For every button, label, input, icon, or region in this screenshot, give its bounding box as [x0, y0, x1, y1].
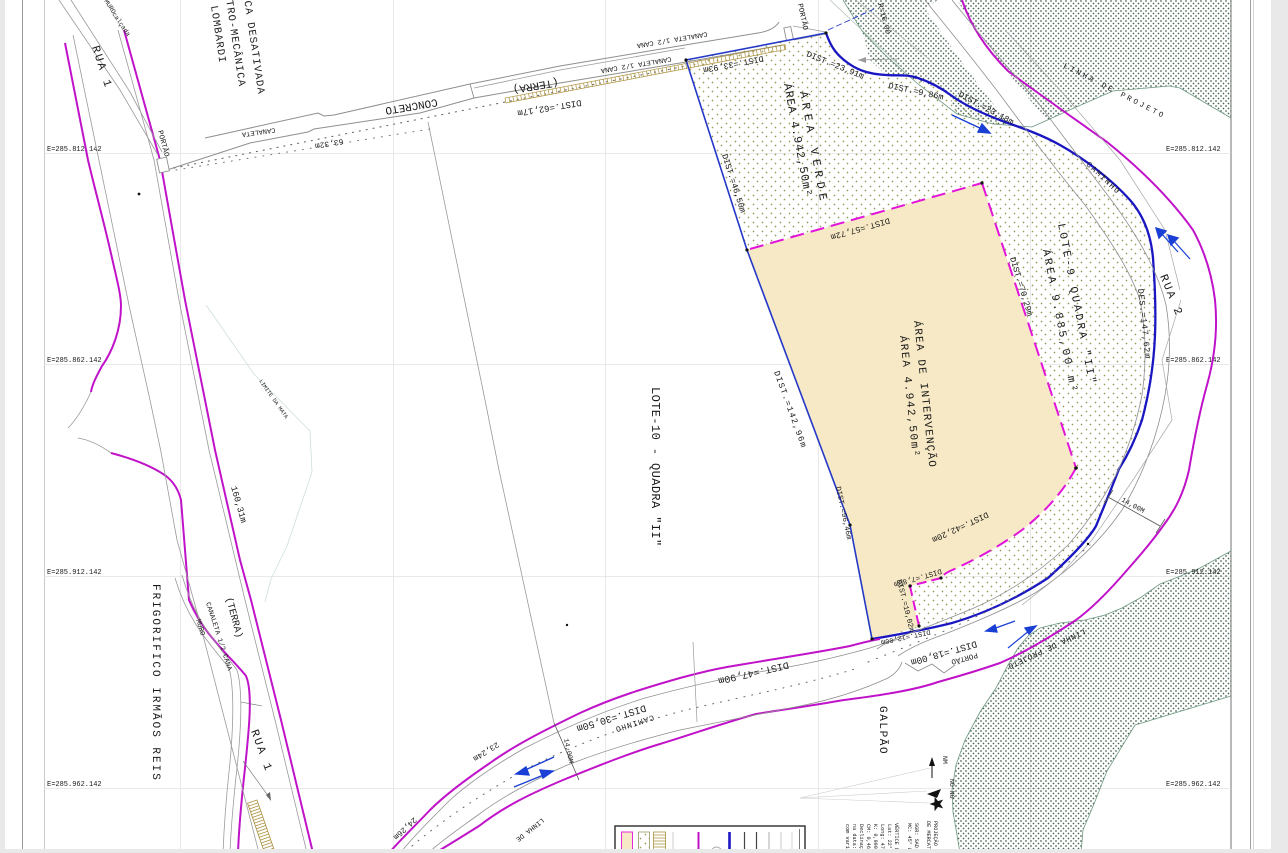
svg-text:FRIGORIFICO IRMÃOS REIS: FRIGORIFICO IRMÃOS REIS — [149, 584, 162, 782]
svg-text:MC: 45° W.GR.: MC: 45° W.GR. — [906, 823, 912, 853]
svg-text:na data: -21°14': na data: -21°14' — [851, 824, 857, 853]
svg-text:CM: 0,46m: CM: 0,46m — [865, 824, 871, 852]
svg-text:E=285.812.142: E=285.812.142 — [1166, 146, 1221, 154]
svg-text:DE MERCATOR (UTM): DE MERCATOR (UTM) — [925, 821, 931, 853]
svg-text:E=285.962.142: E=285.962.142 — [1166, 781, 1221, 789]
svg-text:SGR: SAD-69: SGR: SAD-69 — [913, 823, 919, 853]
svg-text:E=285.962.142: E=285.962.142 — [47, 781, 102, 789]
svg-text:VÉRTICE DE APOIO:: VÉRTICE DE APOIO: — [893, 823, 900, 853]
svg-text:Declinação magnética: Declinação magnética — [858, 824, 864, 853]
svg-text:NM: NM — [941, 756, 948, 764]
svg-text:NO NG: NO NG — [948, 779, 955, 799]
svg-text:E=285.912.142: E=285.912.142 — [1166, 569, 1221, 577]
svg-text:GALPÃO: GALPÃO — [876, 706, 889, 755]
svg-text:Lat: 22°54'08"S: Lat: 22°54'08"S — [886, 824, 892, 853]
svg-text:E=285.912.142: E=285.912.142 — [47, 569, 102, 577]
svg-text:E=285.812.142: E=285.812.142 — [47, 146, 102, 154]
svg-text:K: 0,999601: K: 0,999601 — [872, 824, 878, 853]
svg-text:Long: 47°03'26"W: Long: 47°03'26"W — [879, 824, 885, 853]
svg-text:E=285.862.142: E=285.862.142 — [47, 357, 102, 365]
svg-text:LOTE-10 - QUADRA "II": LOTE-10 - QUADRA "II" — [648, 387, 662, 547]
svg-text:PROJEÇÃO UNIVERSAL: PROJEÇÃO UNIVERSAL — [932, 821, 939, 853]
svg-text:com variação anual: com variação anual — [844, 824, 850, 853]
